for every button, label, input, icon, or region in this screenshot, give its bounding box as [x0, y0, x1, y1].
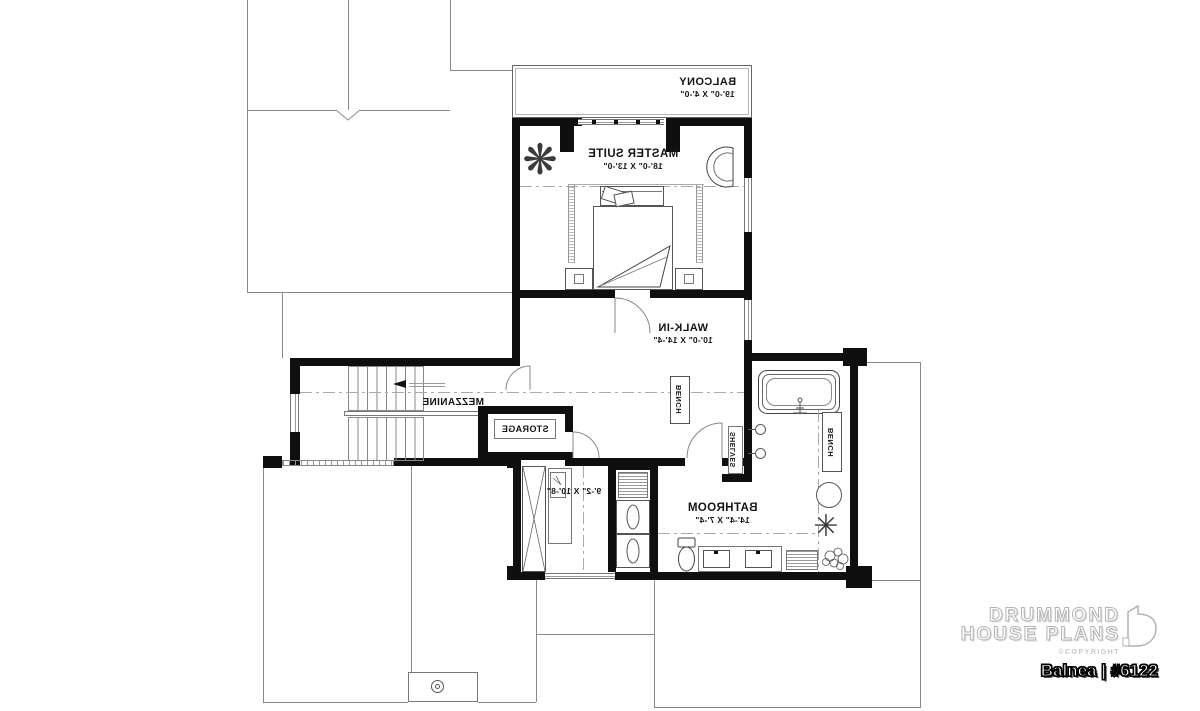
door-arc-icon [573, 432, 599, 458]
roof-ridge-notch [336, 110, 360, 120]
door-arc-icon [687, 423, 722, 458]
plan-title: Balnea | #6122 [978, 661, 1158, 681]
door-arc-icon [615, 298, 650, 333]
bush-plant-icon [823, 548, 849, 570]
drummond-logo-wordmark: DRUMMOND HOUSE PLANS [960, 606, 1120, 644]
logo-line1: DRUMMOND [960, 606, 1120, 625]
copyright-label: ©COPYRIGHT [1010, 649, 1120, 656]
tub-faucet-icon [798, 398, 802, 402]
logo-line2: HOUSE PLANS [960, 625, 1120, 644]
toilet-icon [679, 547, 695, 571]
washer-door-icon [627, 505, 639, 529]
door-arc-icon [506, 366, 530, 390]
tub-faucet-icon [793, 402, 807, 413]
drummond-logo-icon [1122, 602, 1162, 652]
toilet-tank-icon [678, 538, 695, 547]
lamp-detail [553, 476, 561, 485]
blanket-icon [598, 246, 670, 287]
floor-plan-canvas: BALCONY 19'-0" X 4'-0" ❋ MASTER SUITE 18… [0, 0, 1200, 711]
dryer-door-icon [627, 539, 639, 563]
